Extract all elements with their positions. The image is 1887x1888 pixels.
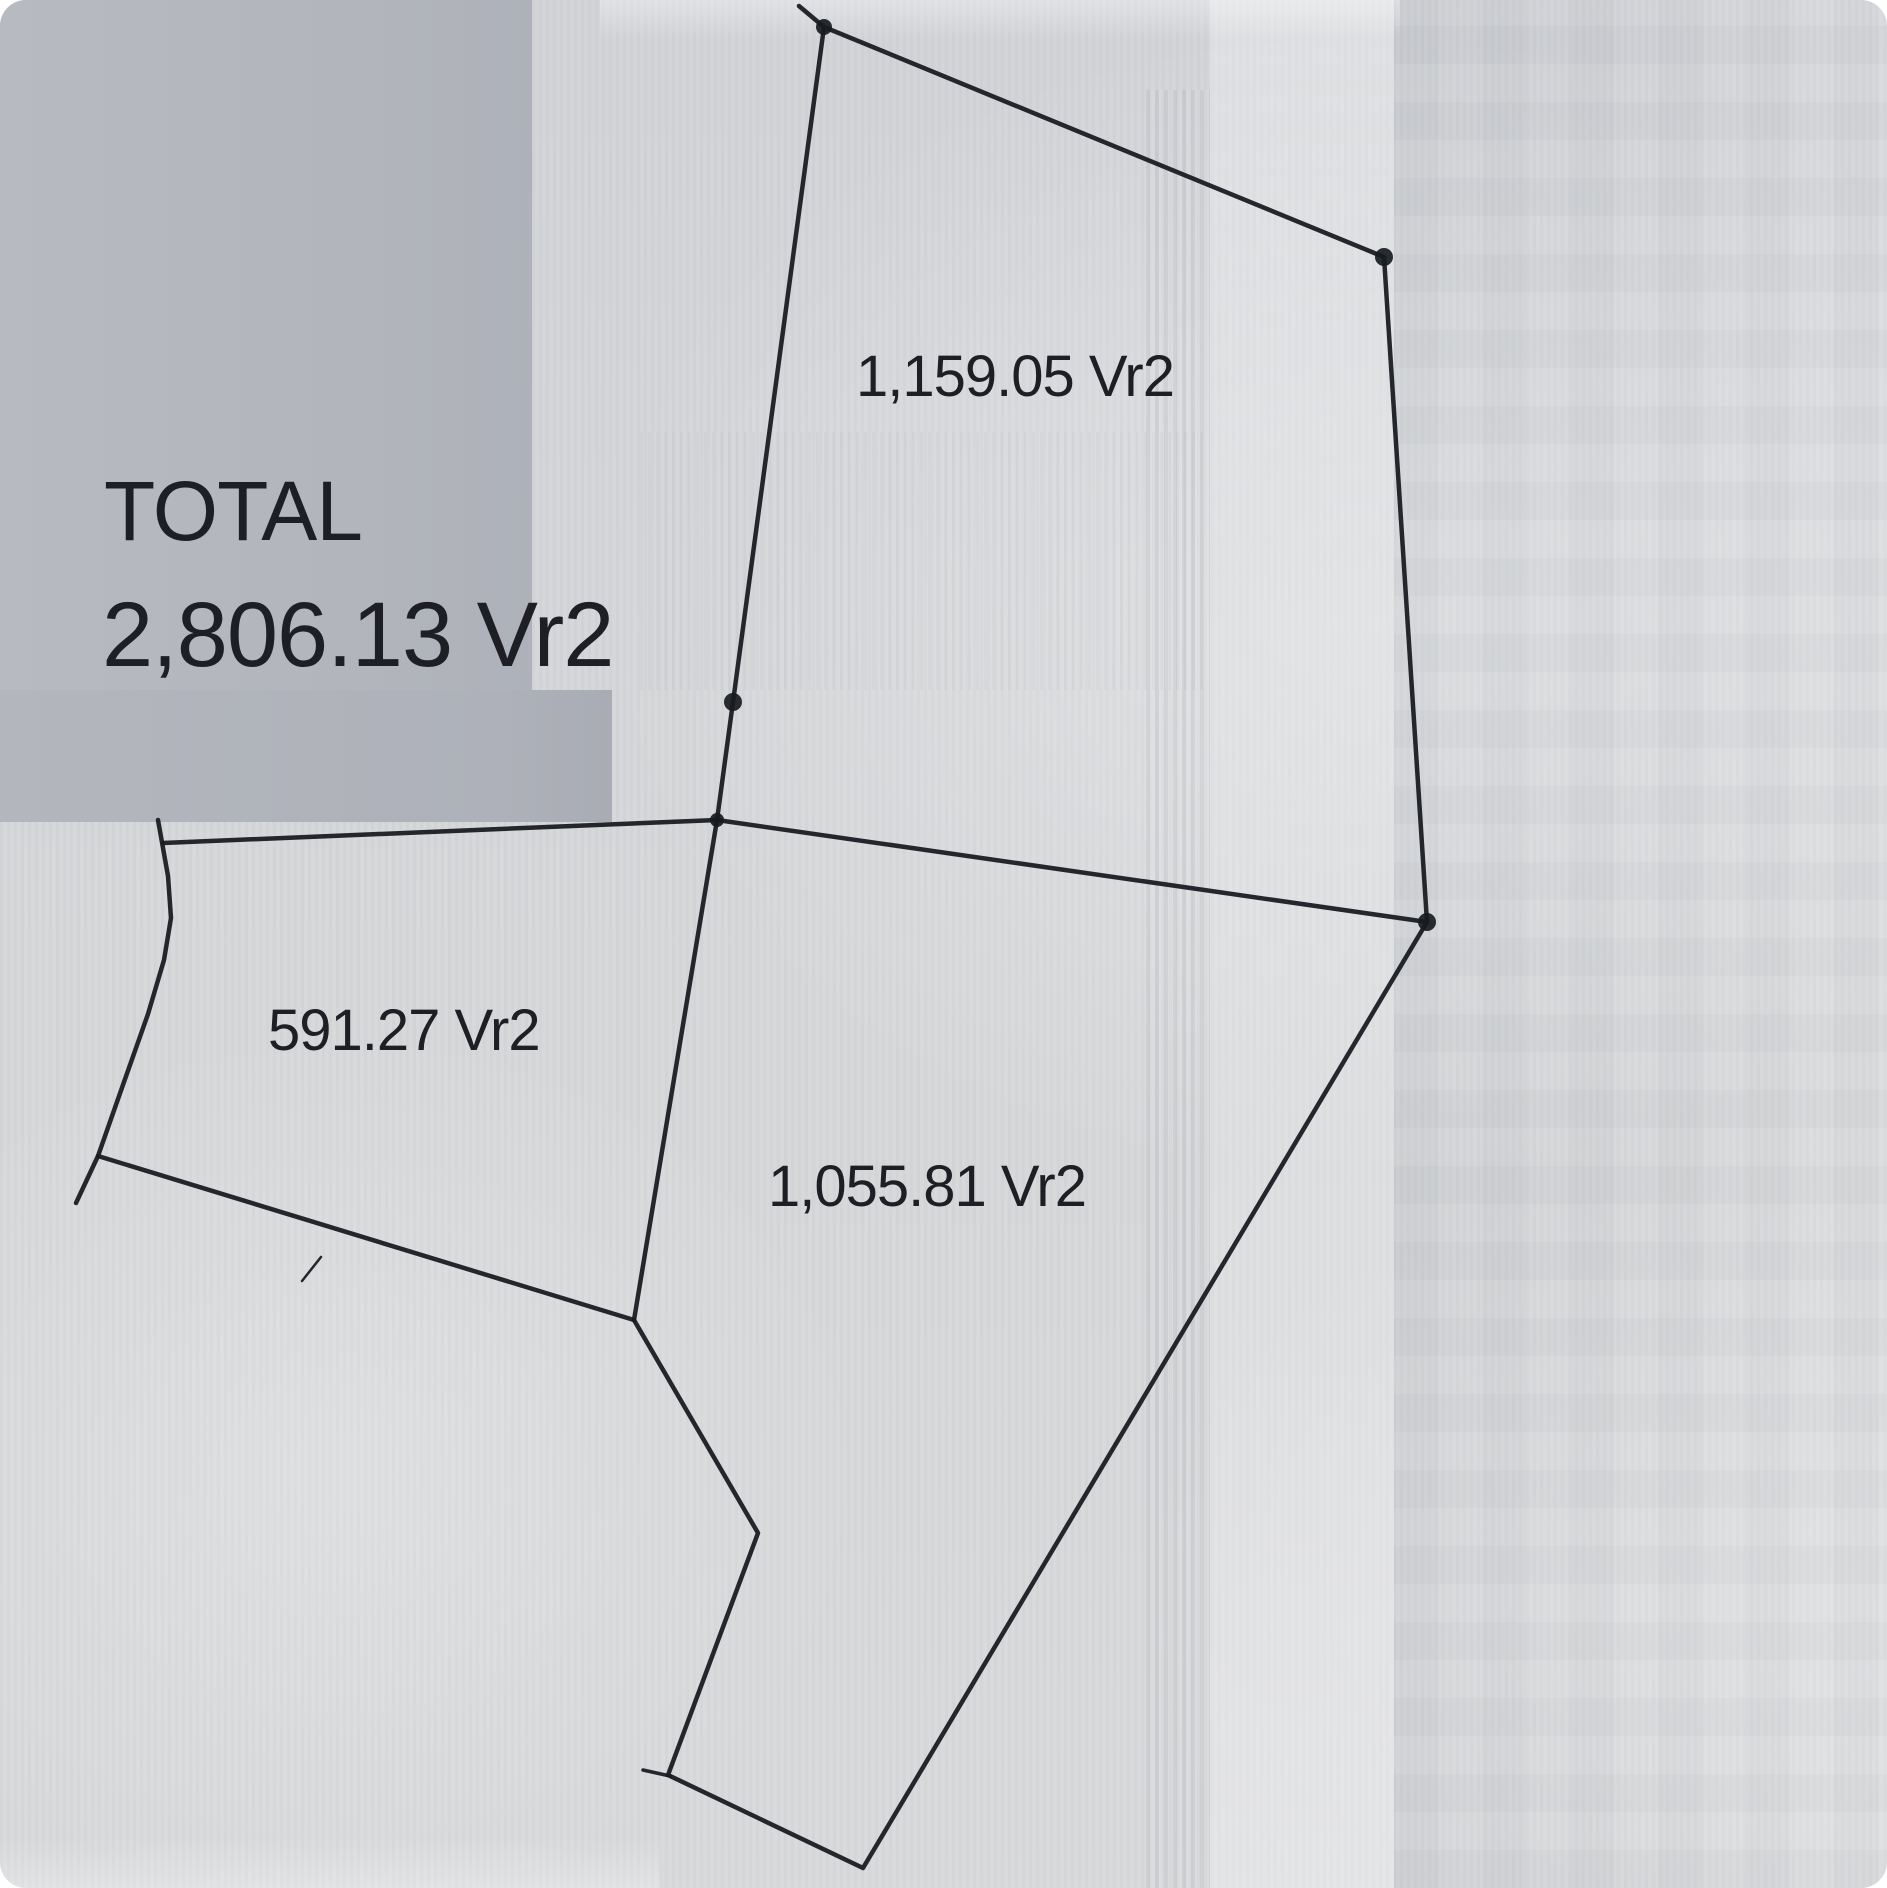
- survey-vertex-dot: [1418, 913, 1436, 931]
- mid-vertical-boundary: [634, 820, 717, 1320]
- west-curved-boundary: [76, 820, 171, 1203]
- north-parcel-right-edge: [1384, 257, 1427, 922]
- west-parcel-bottom-edge: [98, 1156, 634, 1320]
- corner-tick: [643, 1770, 670, 1776]
- survey-vertex-dot: [1375, 248, 1393, 266]
- survey-vertex-dot: [724, 693, 742, 711]
- stray-pen-mark: [302, 1257, 321, 1281]
- parcel-area-label-north: 1,159.05 Vr2: [856, 346, 1174, 409]
- mid-horizontal-boundary: [163, 820, 1427, 922]
- survey-plat-svg: [0, 0, 1887, 1888]
- survey-vertex-dot: [816, 19, 832, 35]
- survey-plat-page: TOTAL 2,806.13 Vr2 1,159.05 Vr2 591.27 V…: [0, 0, 1887, 1888]
- total-label: TOTAL: [104, 466, 362, 557]
- north-parcel-top-edge: [799, 6, 1384, 257]
- south-parcel-outline: [634, 922, 1427, 1868]
- parcel-area-label-south: 1,055.81 Vr2: [768, 1156, 1086, 1219]
- total-area-value: 2,806.13 Vr2: [102, 586, 613, 685]
- survey-vertex-dot: [710, 813, 724, 827]
- parcel-area-label-west: 591.27 Vr2: [268, 1000, 540, 1063]
